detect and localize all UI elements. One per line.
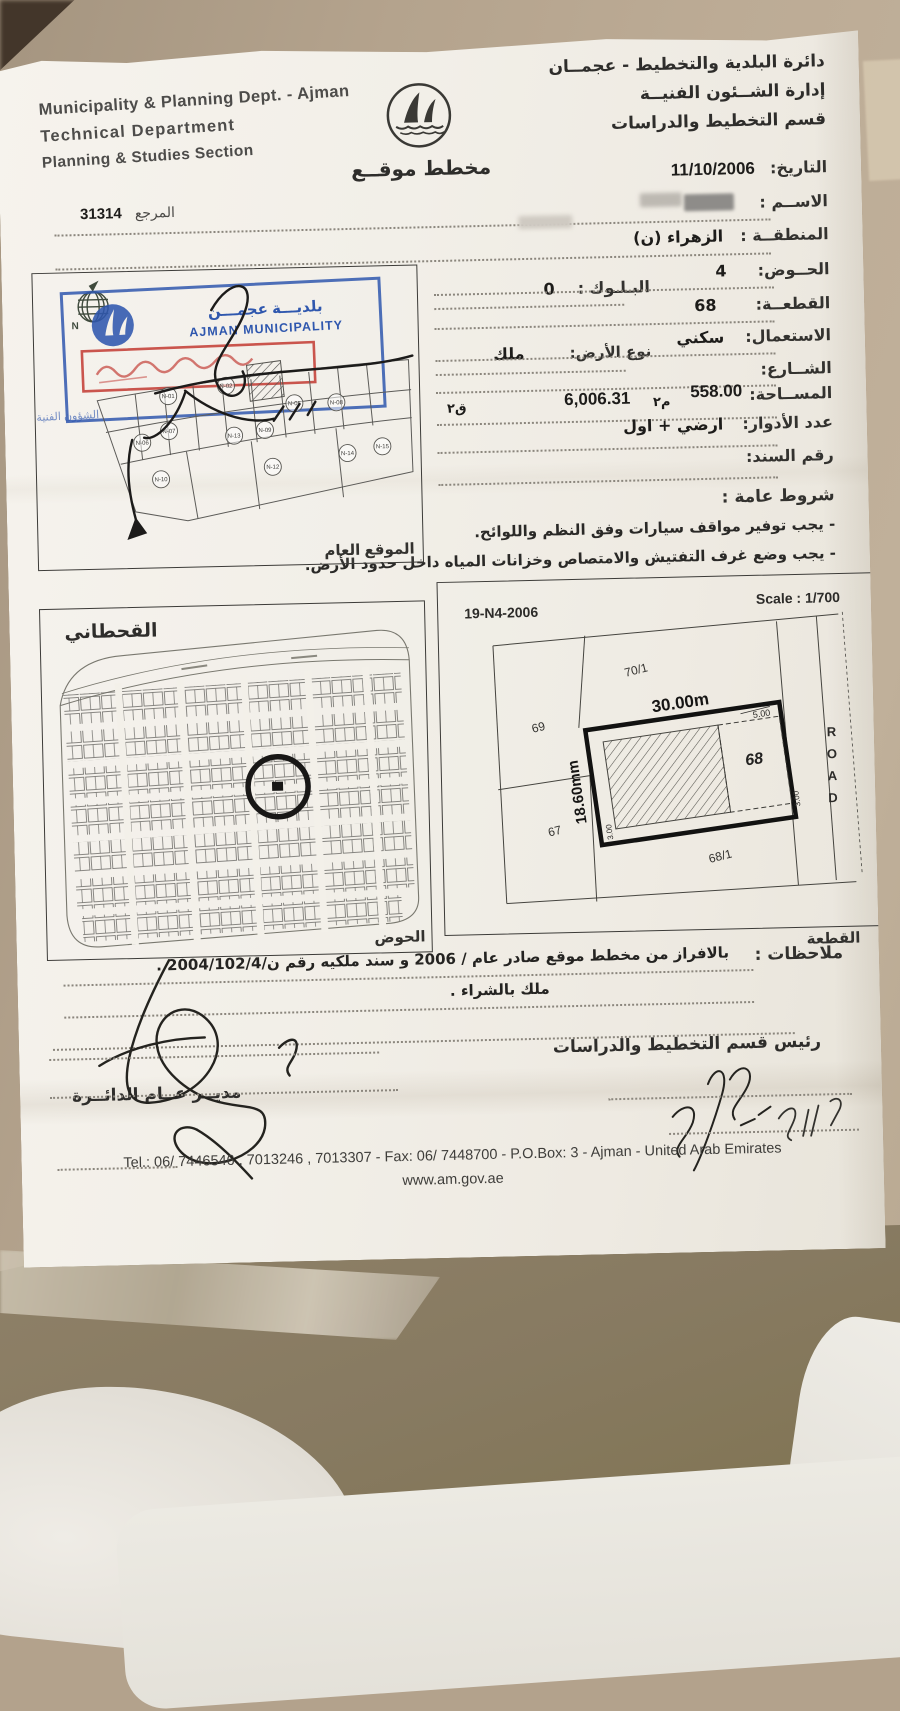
size-label: المســاحة: (749, 383, 832, 404)
date-label: التاريخ: (770, 157, 828, 177)
dim-3m-left: 3.00 (604, 823, 615, 840)
plot-label: القطعــة: (755, 293, 830, 314)
plot-label: N-14 (341, 451, 355, 457)
location-marker-plot (272, 782, 283, 791)
stamp-text-en: AJMAN MUNICIPALITY (189, 318, 343, 340)
plot-label: N-01 (162, 394, 176, 400)
map-scale: Scale : 1/700 (756, 589, 841, 607)
header-arabic: دائرة البلدية والتخطيط - عجمــان إدارة ا… (548, 51, 826, 135)
street-label: الشــارع: (760, 358, 832, 379)
conditions-title: شروط عامة : (721, 485, 834, 508)
plot-detail-box: 19-N4-2006 Scale : 1/700 30.00m 18.60mm … (436, 572, 880, 936)
date-row: التاريخ: 11/10/2006 (671, 157, 828, 181)
floors-label: عدد الأدوار: (742, 412, 833, 433)
basin-label: الحــوض: (757, 259, 829, 280)
district-title: القحطاني (64, 619, 157, 643)
stamp-text-ar: بلديـــة عجمـــن (208, 298, 323, 321)
area-label: المنطقــة : (740, 224, 829, 245)
compass-north-label: N (71, 321, 78, 332)
general-location-box: N بلديـــة عجمـــن AJMAN MUNICIPALITY ال… (31, 264, 424, 571)
plot-label: N-06 (136, 441, 150, 447)
plot-68-group: 30.00m 18.60mm 5.00 3.00 3.00 68 (557, 678, 804, 849)
road-label: ROAD (824, 724, 841, 812)
field-floors: عدد الأدوار: ارضي + اول (623, 412, 833, 436)
general-location-caption: الموقع العام (324, 540, 415, 560)
date-value: 11/10/2006 (671, 159, 756, 181)
ref-value: 31314 (80, 205, 122, 223)
field-basin: الحــوض: 4 (715, 259, 830, 281)
field-name: الاســم : (759, 191, 828, 212)
name-label: الاســم : (759, 191, 828, 212)
unit-m2: م٢ (653, 395, 671, 410)
plot-detail-map: 19-N4-2006 Scale : 1/700 30.00m 18.60mm … (438, 573, 880, 935)
field-block: البـلـوك : 0 (543, 277, 650, 298)
size-m-value: 558.00 (690, 381, 742, 402)
block-label: البـلـوك : (577, 277, 650, 298)
neighbor-plot-68-1: 68/1 (707, 846, 733, 865)
field-landtype: نوع الأرض: ملك (493, 341, 651, 364)
header-english: Municipality & Planning Dept. - Ajman Te… (38, 82, 353, 173)
plot-label: N-13 (228, 433, 242, 439)
plot-label: N-10 (155, 477, 169, 483)
area-value: الزهراء (ن) (633, 226, 723, 247)
background-tape (863, 59, 900, 181)
plot-68-number: 68 (744, 750, 764, 769)
plot-label: N-09 (258, 428, 272, 434)
district-street-map (40, 601, 432, 960)
dept-name-ar: دائرة البلدية والتخطيط - عجمــان (548, 51, 825, 77)
notes-label: ملاحظات : (754, 943, 843, 965)
use-value: سكني (676, 327, 724, 347)
document-title: مخطط موقــع (351, 155, 492, 182)
field-deed: رقم السند: (746, 445, 834, 466)
neighbor-plot-70-1: 70/1 (623, 660, 649, 679)
deed-label: رقم السند: (746, 445, 834, 466)
field-plot: القطعــة: 68 (694, 293, 830, 315)
building-footprint (603, 725, 730, 829)
field-area: المنطقــة : الزهراء (ن) (633, 224, 829, 247)
field-size: المســاحة: (749, 383, 832, 404)
block-value: 0 (543, 279, 555, 298)
landtype-value: ملك (493, 344, 525, 364)
redacted-name-block (684, 193, 734, 211)
plot-ref-number: 19-N4-2006 (464, 604, 538, 622)
unit-ft2: ق٢ (447, 401, 467, 416)
plot-value: 68 (694, 296, 717, 316)
stamp-logo-icon (91, 303, 135, 347)
field-street: الشــارع: (760, 358, 832, 379)
technical-dept-ar: إدارة الشــئون الفنيــة (549, 80, 826, 106)
depth-dimension: 18.60mm (565, 759, 591, 825)
plot-label: N-15 (376, 444, 390, 450)
redacted-name-block (640, 192, 682, 207)
ajman-dhow-logo (383, 80, 455, 152)
notes-line2: ملك بالشراء . (450, 980, 550, 1000)
district-map-box: القحطاني (39, 600, 433, 961)
neighbor-plot-67: 67 (547, 823, 564, 840)
district-map-caption: الحوض (374, 927, 426, 946)
general-location-map: N بلديـــة عجمـــن AJMAN MUNICIPALITY ال… (32, 265, 423, 570)
planning-section-ar: قسم التخطيط والدراسات (550, 109, 827, 135)
plot-label: N-08 (330, 400, 344, 406)
neighbor-plot-69: 69 (530, 719, 547, 736)
basin-value: 4 (715, 261, 727, 280)
condition-1: - يجب توفير مواقف سيارات وفق النظم واللو… (474, 515, 835, 541)
size-ft-value: 6,006.31 (564, 389, 631, 410)
document-paper: Municipality & Planning Dept. - Ajman Te… (0, 30, 886, 1267)
city-blocks (63, 665, 418, 949)
dim-3m-right: 3.00 (791, 790, 802, 807)
use-label: الاستعمال: (745, 325, 831, 346)
floors-value: ارضي + اول (623, 415, 724, 436)
landtype-label: نوع الأرض: (569, 342, 651, 362)
ref-label: المرجع (135, 205, 175, 222)
redacted-block (518, 215, 572, 229)
reference-row: المرجع 31314 (80, 202, 175, 223)
field-use: الاستعمال: سكني (676, 325, 831, 348)
plot-label: N-12 (266, 465, 280, 471)
